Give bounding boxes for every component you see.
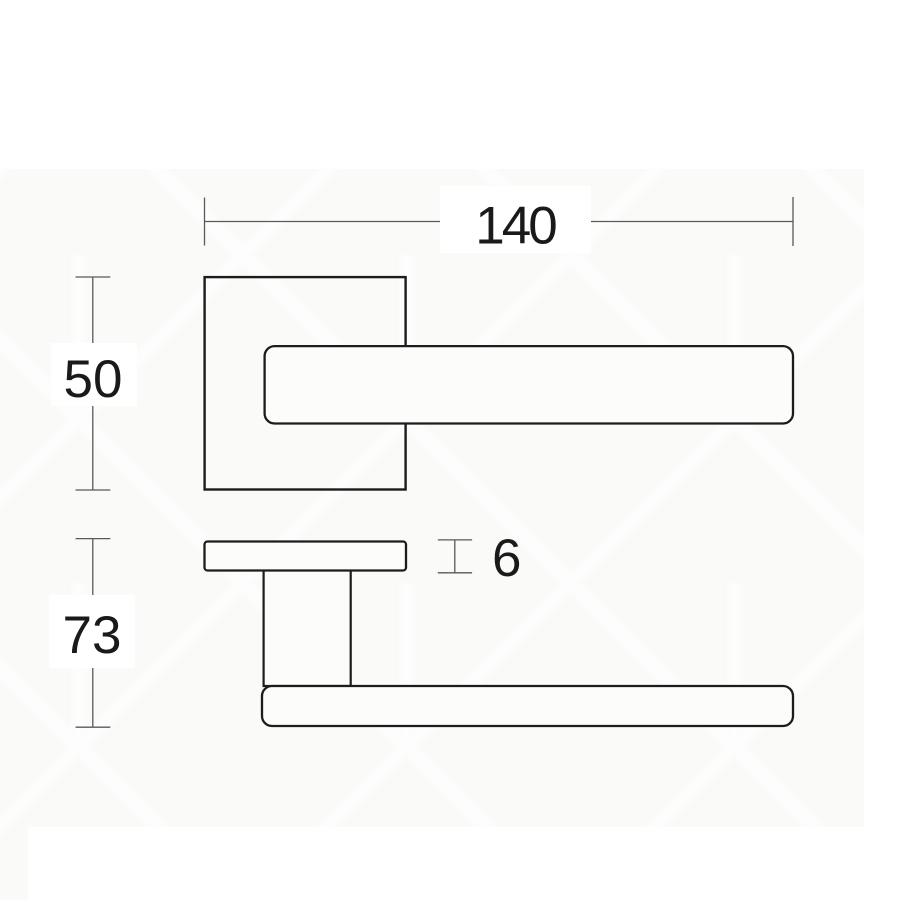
svg-text:140: 140 <box>475 197 556 256</box>
svg-text:50: 50 <box>64 350 123 409</box>
svg-text:73: 73 <box>63 606 122 665</box>
svg-text:6: 6 <box>492 529 521 588</box>
